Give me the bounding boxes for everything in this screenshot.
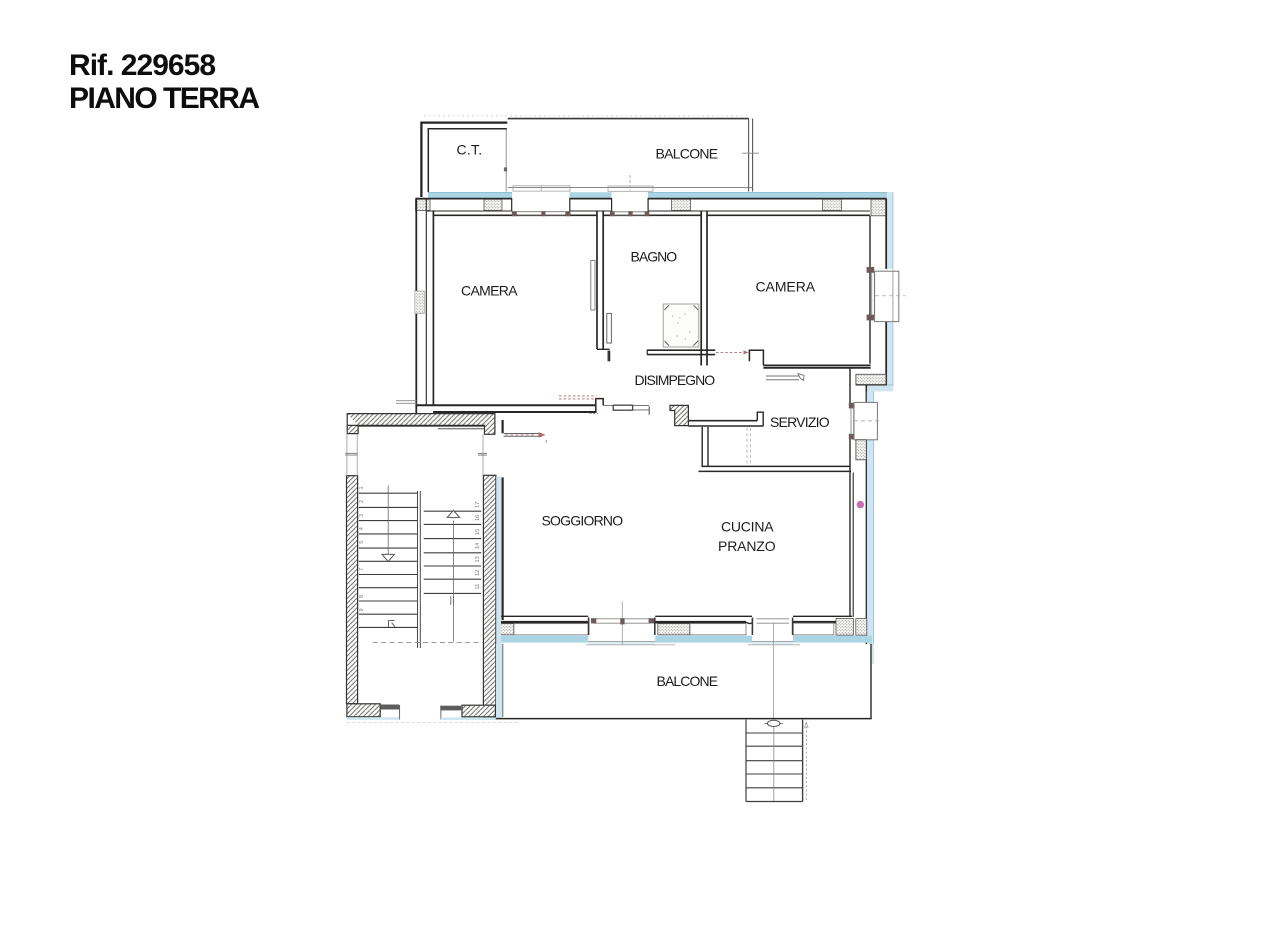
svg-text:4: 4 <box>359 527 365 530</box>
svg-text:16: 16 <box>475 515 481 521</box>
svg-text:BALCONE: BALCONE <box>656 146 719 162</box>
svg-text:13: 13 <box>475 556 481 562</box>
svg-text:17: 17 <box>475 502 481 508</box>
svg-text:PIANO TERRA: PIANO TERRA <box>69 82 260 115</box>
svg-text:SOGGIORNO: SOGGIORNO <box>542 512 624 528</box>
svg-text:11: 11 <box>475 584 481 590</box>
svg-text:SERVIZIO: SERVIZIO <box>770 414 830 430</box>
svg-text:8: 8 <box>359 595 365 598</box>
svg-text:DISIMPEGNO: DISIMPEGNO <box>635 372 716 388</box>
svg-text:5: 5 <box>359 541 365 544</box>
svg-text:1: 1 <box>359 486 365 489</box>
svg-text:Rif. 229658: Rif. 229658 <box>69 49 216 82</box>
svg-text:CAMERA: CAMERA <box>461 283 518 299</box>
svg-text:CAMERA: CAMERA <box>756 279 816 295</box>
svg-text:C.T.: C.T. <box>457 142 483 158</box>
svg-text:7: 7 <box>359 568 365 571</box>
svg-text:12: 12 <box>475 570 481 576</box>
svg-text:CUCINA: CUCINA <box>721 519 774 535</box>
svg-text:BAGNO: BAGNO <box>631 249 678 265</box>
svg-text:PRANZO: PRANZO <box>718 538 776 554</box>
svg-text:15: 15 <box>475 529 481 535</box>
svg-text:3: 3 <box>359 514 365 517</box>
svg-text:BALCONE: BALCONE <box>657 673 719 689</box>
svg-text:9: 9 <box>359 608 365 611</box>
svg-text:2: 2 <box>359 500 365 503</box>
svg-text:14: 14 <box>475 543 481 549</box>
